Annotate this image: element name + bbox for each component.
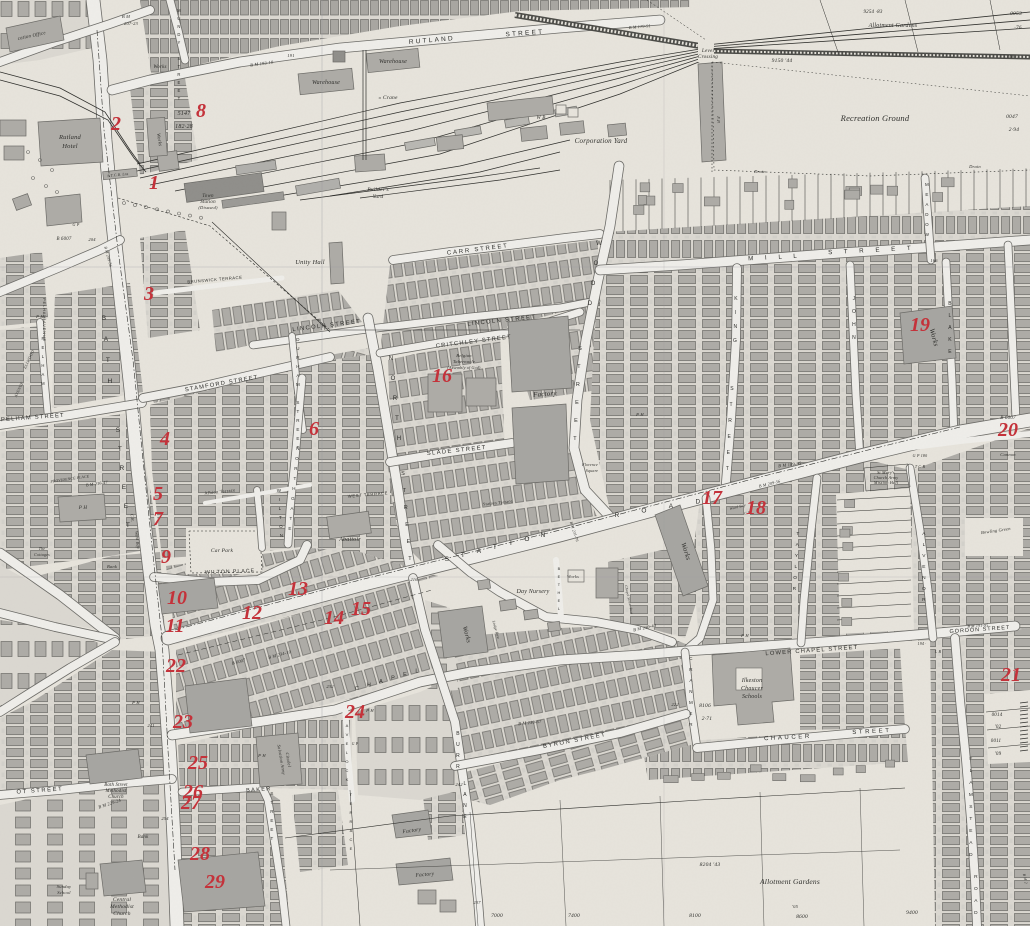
svg-text:4: 4 [159, 428, 170, 450]
svg-text:16: 16 [432, 365, 452, 387]
svg-text:12: 12 [242, 602, 262, 624]
svg-text:24: 24 [344, 701, 365, 723]
svg-text:20: 20 [997, 419, 1018, 441]
svg-text:23: 23 [172, 711, 193, 733]
svg-text:17: 17 [702, 487, 723, 509]
svg-text:25: 25 [187, 752, 208, 774]
svg-text:18: 18 [746, 497, 766, 519]
svg-text:14: 14 [324, 607, 344, 629]
svg-text:19: 19 [910, 314, 930, 336]
svg-text:3: 3 [143, 283, 154, 305]
svg-text:7: 7 [153, 508, 164, 530]
svg-text:21: 21 [1000, 664, 1021, 686]
svg-text:29: 29 [204, 871, 225, 893]
svg-text:6: 6 [309, 418, 319, 440]
svg-text:13: 13 [288, 578, 308, 600]
svg-text:1: 1 [149, 172, 159, 194]
svg-text:9: 9 [161, 546, 171, 568]
svg-text:8: 8 [196, 100, 206, 122]
svg-text:10: 10 [167, 587, 187, 609]
svg-text:22: 22 [165, 655, 186, 677]
svg-text:2: 2 [110, 113, 121, 135]
svg-text:5: 5 [153, 483, 163, 505]
svg-text:28: 28 [189, 843, 210, 865]
svg-text:27: 27 [180, 792, 202, 814]
svg-text:15: 15 [351, 598, 371, 620]
svg-text:11: 11 [166, 615, 185, 637]
